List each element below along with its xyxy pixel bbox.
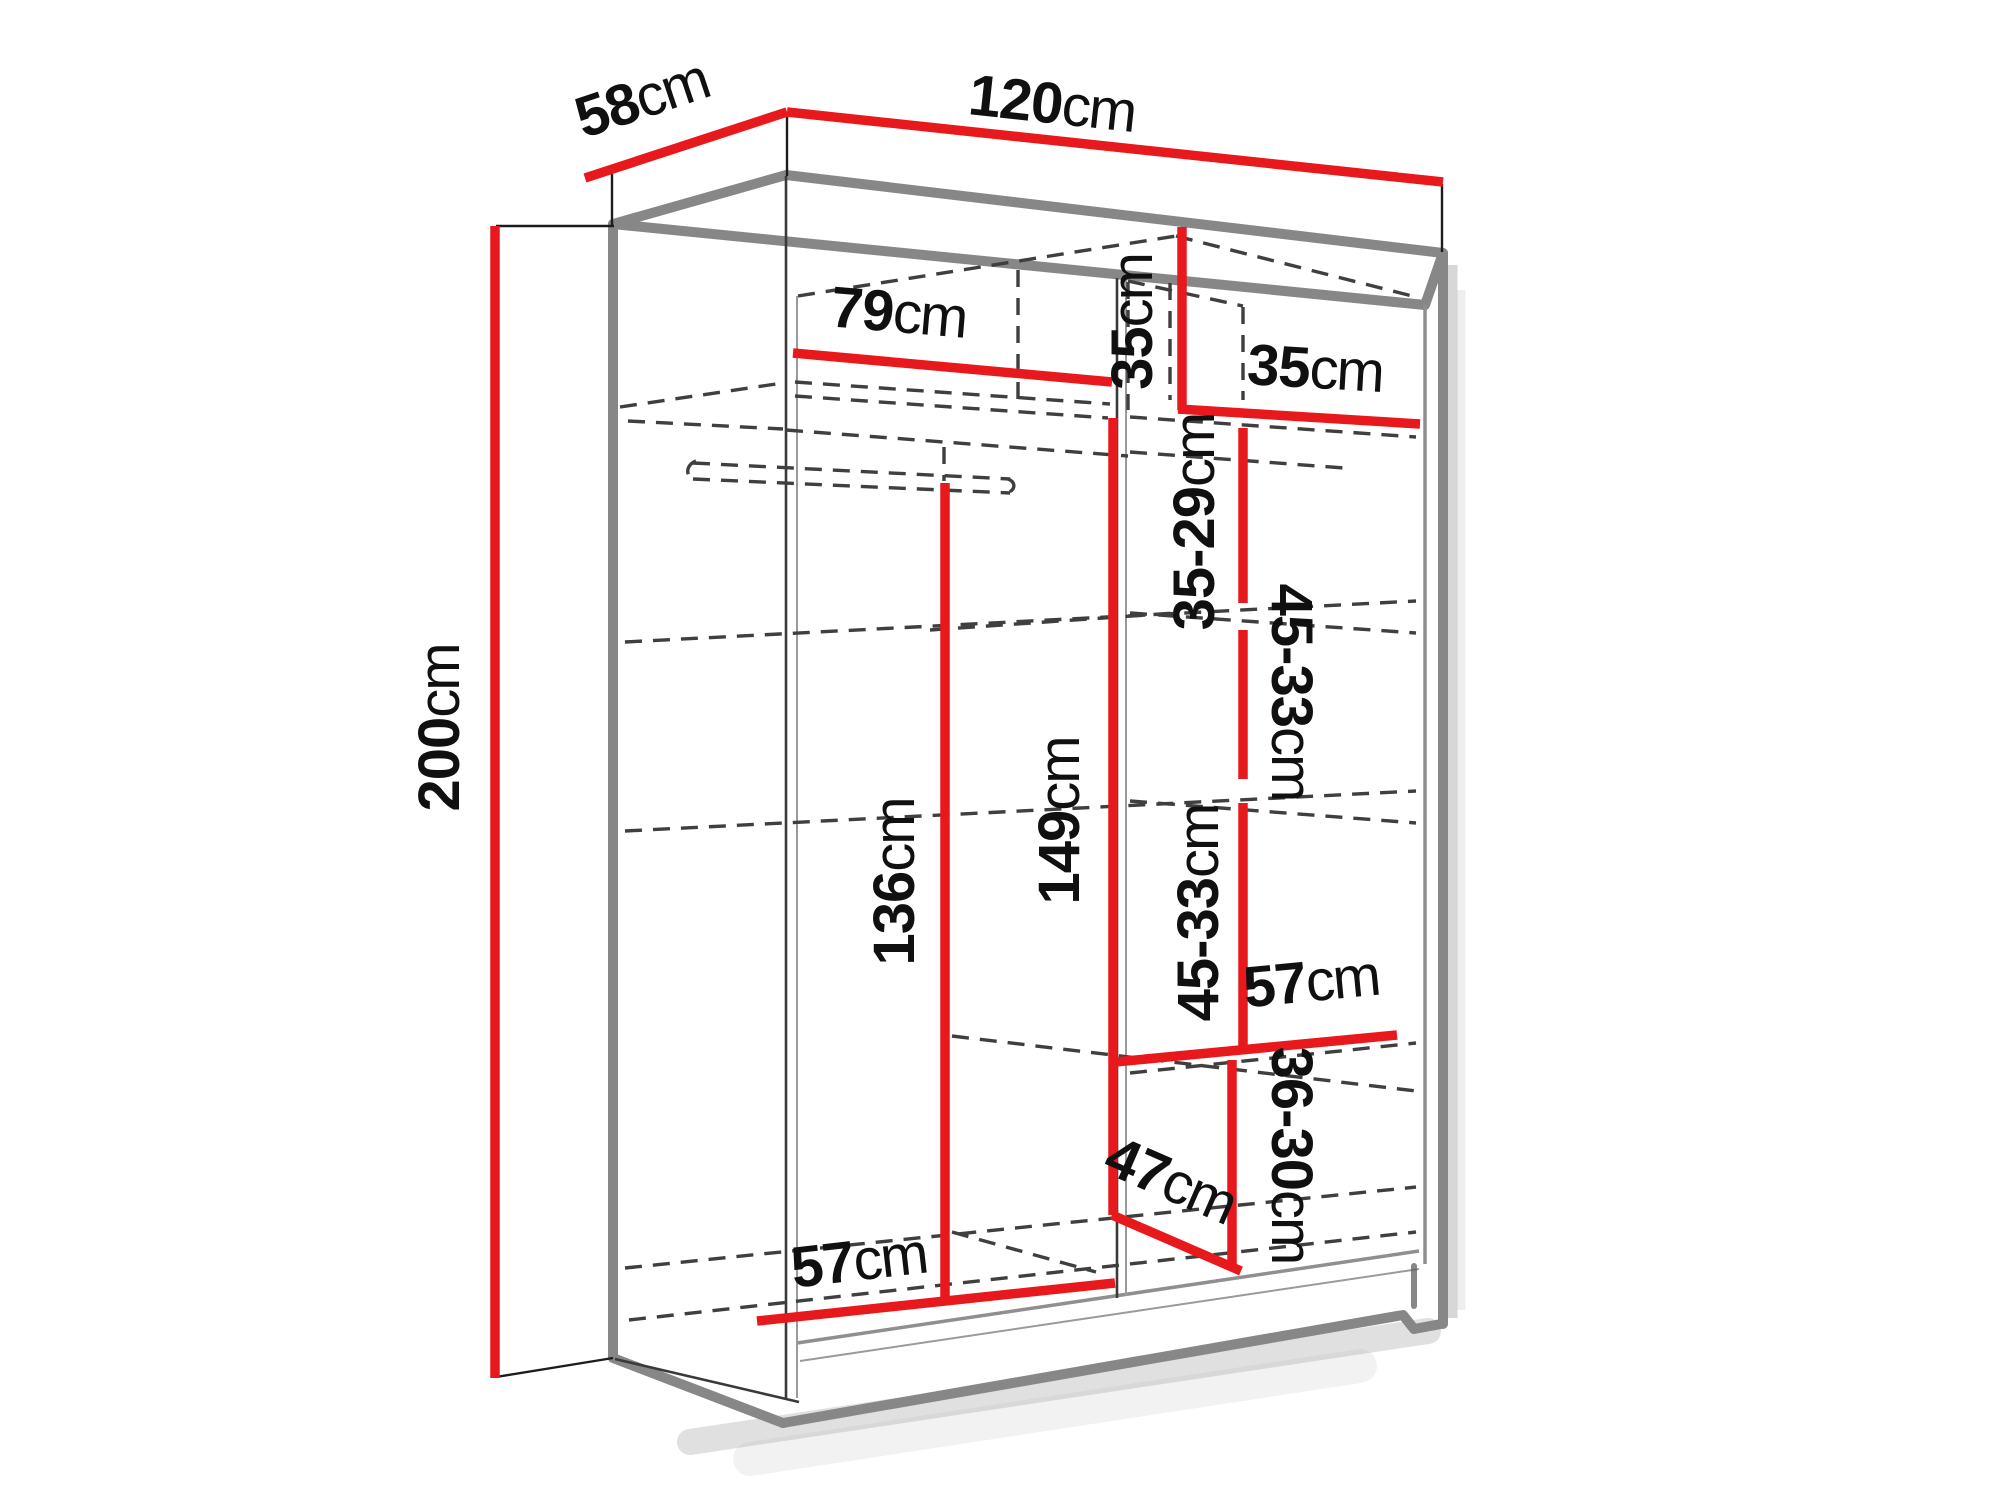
- label-136: 136cm: [862, 798, 927, 965]
- hanging-rail-bottom: [693, 479, 1010, 493]
- label-45-33-upper: 45-33cm: [1259, 584, 1324, 801]
- diagram-canvas: 58cm 120cm 200cm 79cm 35cm 35cm 35-29cm …: [0, 0, 2000, 1500]
- label-45-33-lower: 45-33cm: [1166, 805, 1231, 1022]
- ext-height-bottom: [496, 1358, 613, 1377]
- label-depth-58: 58cm: [567, 46, 716, 151]
- side-shadow: [1451, 265, 1461, 1318]
- left-shelf-front-edge: [628, 421, 783, 429]
- dim-line-79: [793, 353, 1112, 382]
- shelf2-mid-edge: [930, 613, 1175, 630]
- wardrobe-dimension-diagram: 58cm 120cm 200cm 79cm 35cm 35cm 35-29cm …: [0, 0, 2000, 1500]
- floor-corner-edge: [952, 1232, 1096, 1272]
- left-shelf-back-edge: [620, 383, 783, 407]
- hanging-rail-right-cap: [1007, 479, 1014, 493]
- floor-shadow: [690, 1331, 1428, 1459]
- hanging-rail-top: [693, 463, 1010, 479]
- left-shelf-edge-r1: [795, 382, 1110, 404]
- label-36-30: 36-30cm: [1259, 1047, 1324, 1264]
- label-79: 79cm: [828, 274, 969, 350]
- top-panel: [613, 175, 1443, 305]
- label-height-200: 200cm: [407, 644, 472, 811]
- left-panel-bottom-edge: [613, 1358, 783, 1423]
- label-35-29: 35-29cm: [1162, 414, 1227, 631]
- label-35-vertical: 35cm: [1100, 254, 1165, 390]
- label-35-horizontal: 35cm: [1245, 332, 1384, 405]
- label-149: 149cm: [1027, 737, 1092, 904]
- label-57-right: 57cm: [1240, 943, 1381, 1021]
- left-shelf-edge-r3: [786, 430, 1128, 456]
